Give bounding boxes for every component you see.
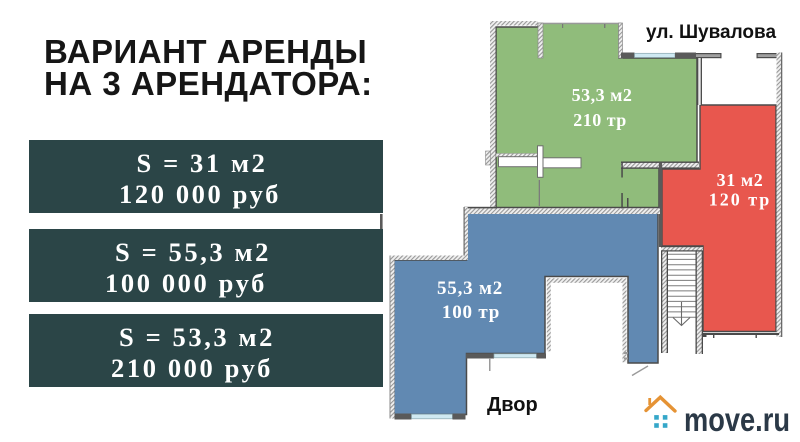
svg-text:31 м2: 31 м2 [717,170,764,190]
svg-text:ул. Шувалова: ул. Шувалова [646,22,776,43]
svg-text:53,3 м2: 53,3 м2 [572,85,633,105]
svg-text:120 тр: 120 тр [709,190,772,210]
svg-text:100 тр: 100 тр [442,302,500,323]
svg-text:Двор: Двор [487,394,538,416]
svg-text:move.ru: move.ru [684,401,790,438]
svg-text:55,3 м2: 55,3 м2 [437,278,503,299]
svg-text:210 тр: 210 тр [573,110,627,130]
